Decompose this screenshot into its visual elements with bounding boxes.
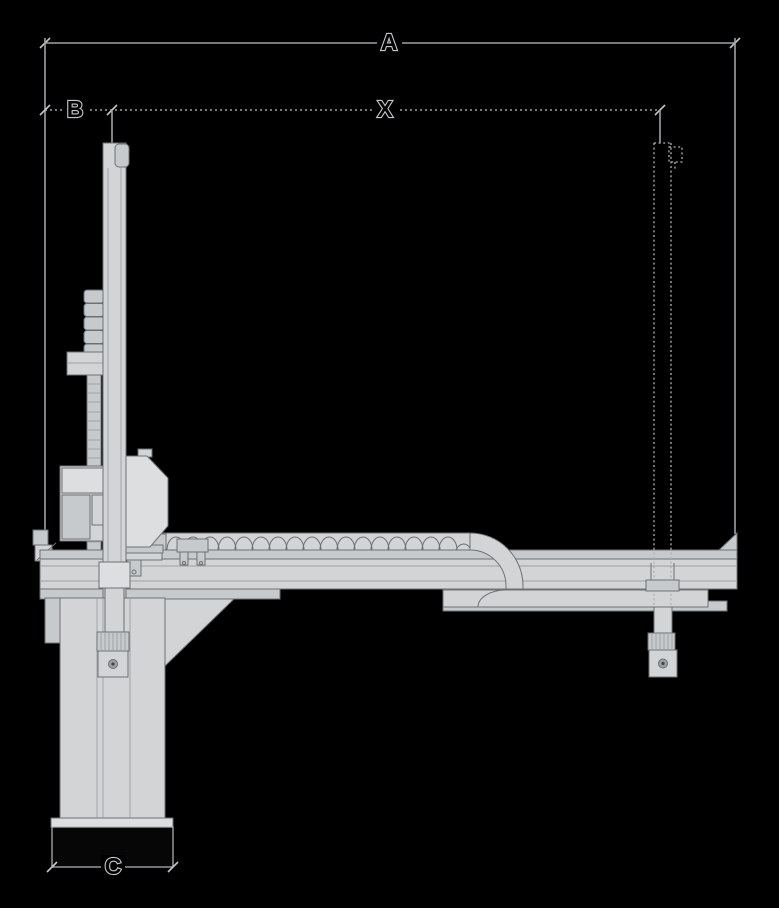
label-a: A bbox=[381, 29, 398, 55]
label-c: C bbox=[105, 853, 122, 879]
chain-bracket bbox=[67, 352, 104, 375]
beam-end-cap bbox=[719, 533, 737, 550]
label-b: B bbox=[67, 96, 84, 122]
gripper-right-rod bbox=[654, 607, 672, 633]
arm-rod bbox=[105, 588, 124, 632]
gripper-right bbox=[648, 633, 677, 677]
arm-top-cap bbox=[115, 144, 129, 167]
gripper-left bbox=[97, 632, 129, 677]
vertical-arm-profile bbox=[103, 143, 126, 589]
lower-chain-rail bbox=[443, 590, 727, 611]
phantom-arm-carriage bbox=[646, 580, 679, 591]
base-foot-plate bbox=[51, 818, 173, 827]
pedestal-left-stub bbox=[45, 598, 62, 643]
z-carriage bbox=[99, 562, 130, 588]
vertical-cable-chain bbox=[84, 290, 104, 357]
pedestal bbox=[45, 598, 234, 867]
robot-side-view-drawing: A B X C bbox=[0, 0, 779, 908]
label-x: X bbox=[377, 96, 393, 122]
robot-machine bbox=[33, 143, 737, 867]
vertical-arm bbox=[99, 143, 130, 632]
beam-body bbox=[40, 559, 737, 589]
pedestal-gusset bbox=[165, 599, 234, 666]
dimension-diagram: A B X C bbox=[0, 0, 779, 908]
drive-housing bbox=[60, 466, 109, 541]
